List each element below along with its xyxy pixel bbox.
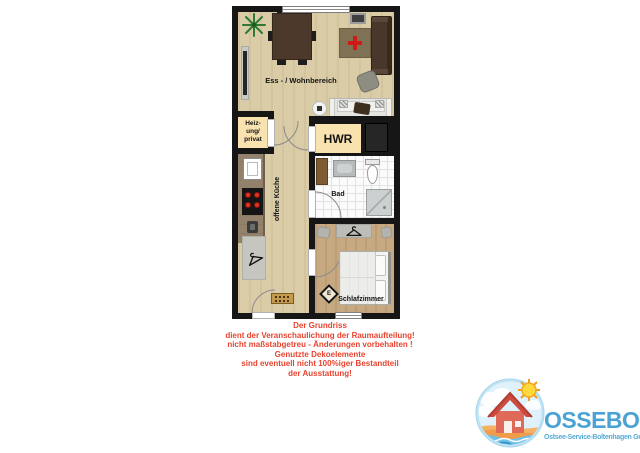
striped-pillow — [339, 100, 348, 108]
cooktop — [242, 188, 263, 215]
floor-plan: Ess - / Wohnbereich Heiz- ung/ privat HW… — [232, 6, 400, 319]
disclaimer-line: dient der Veranschaulichung der Raumauft… — [140, 331, 500, 341]
hanger-icon — [242, 248, 265, 268]
disclaimer-line: Genutzte Dekoelemente — [140, 350, 500, 360]
dining-table — [272, 13, 312, 60]
pouf — [316, 226, 331, 239]
pouf — [380, 226, 393, 239]
tv-icon — [243, 51, 247, 95]
door-swing-arc — [252, 290, 275, 313]
room-label-bedroom: Schlafzimmer — [333, 296, 389, 303]
disclaimer-line: Der Grundriss — [140, 321, 500, 331]
room-heating: Heiz- ung/ privat — [238, 117, 268, 148]
red-cross-decor-icon — [348, 41, 362, 45]
hall-mat — [242, 236, 266, 280]
door — [308, 126, 316, 152]
side-table — [312, 101, 327, 116]
striped-pillow — [375, 100, 384, 108]
wall-mounted-tv — [350, 13, 366, 24]
door-swing-arc — [284, 126, 308, 150]
room-label-bath: Bad — [328, 191, 348, 198]
window — [282, 6, 350, 13]
wardrobe-mat — [336, 224, 372, 238]
throw-blanket — [353, 102, 371, 115]
sideboard-sofa — [329, 98, 392, 118]
shower — [366, 189, 392, 216]
sofa — [371, 16, 392, 75]
disclaimer-line: nicht maßstabgetreu - Änderungen vorbeha… — [140, 340, 500, 350]
disclaimer-text: Der Grundriss dient der Veranschaulichun… — [140, 321, 500, 379]
room-label-living: Ess - / Wohnbereich — [262, 76, 340, 85]
burner — [245, 202, 251, 208]
kitchen-sink — [247, 221, 258, 233]
tv-board — [241, 46, 249, 100]
bath-sink — [333, 160, 356, 177]
burner — [254, 192, 260, 198]
plant-icon — [242, 13, 266, 37]
room-label-kitchen: offene Küche — [274, 164, 284, 234]
shaft — [365, 123, 388, 152]
room-utility: HWR — [315, 124, 361, 153]
bath-cabinet — [316, 158, 328, 185]
disclaimer-line: der Ausstattung! — [140, 369, 500, 379]
hanger-icon — [343, 226, 365, 237]
burner — [245, 192, 251, 198]
toilet — [365, 159, 380, 185]
pillow — [375, 255, 386, 276]
door-swing-arc — [315, 251, 341, 277]
company-subtitle: Ostsee-Service-Boltenhagen GmbH — [544, 434, 640, 441]
company-name: OSSEBO — [544, 407, 639, 434]
burner — [254, 202, 260, 208]
disclaimer-line: sind eventuell nicht 100%iger Bestandtei… — [140, 359, 500, 369]
entrance-door — [252, 312, 275, 319]
company-logo-icon — [474, 377, 546, 449]
window — [335, 312, 362, 319]
fridge — [243, 158, 262, 180]
